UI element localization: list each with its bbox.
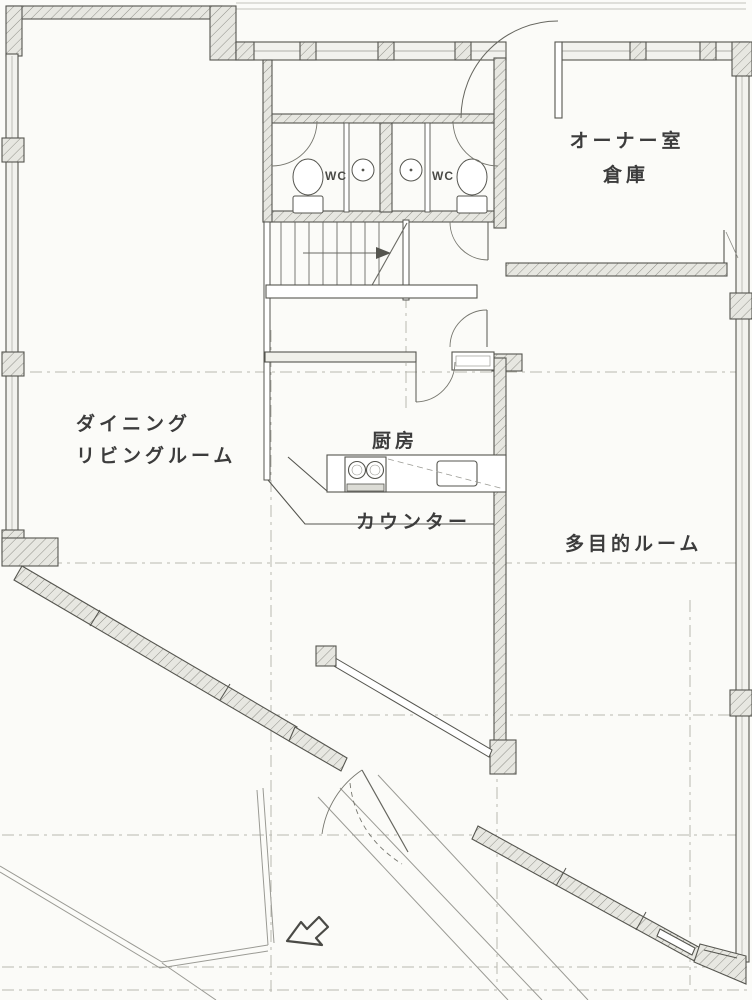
owner-room-label: オーナー室: [569, 129, 684, 152]
right-pilaster: [730, 293, 752, 319]
bay-right-post: [210, 6, 236, 60]
corridor-west-wall: [263, 60, 272, 222]
wc-right-label: WC: [432, 169, 454, 183]
counter-label: カウンター: [356, 511, 471, 533]
wall-cap: [490, 740, 516, 774]
kitchen-label: 厨房: [372, 429, 418, 452]
sw-corner-block: [2, 538, 58, 566]
cooktop-control-strip: [347, 484, 384, 491]
wc-center-wall: [380, 123, 392, 212]
owner-room-west-wall: [494, 58, 506, 228]
wc-partition: [344, 123, 349, 212]
multipurpose-room-label: 多目的ルーム: [565, 532, 702, 555]
left-pilaster: [2, 138, 24, 162]
multipurpose-north-wall: [506, 263, 727, 276]
right-pilaster: [730, 690, 752, 716]
stair-landing: [266, 285, 477, 298]
right-wall: [736, 42, 749, 962]
dining-label-line2: リビングルーム: [76, 444, 236, 467]
floor-plan-canvas: オーナー室 倉庫 ダイニング リビングルーム 厨房 カウンター 多目的ルーム W…: [0, 0, 752, 1000]
kitchen-pass-through: [452, 352, 494, 370]
toilet-tank: [457, 196, 487, 213]
multipurpose-west-wall: [494, 358, 506, 747]
vestibule-wall-post: [316, 646, 336, 666]
right-top-corner: [732, 42, 752, 76]
floor-plan-sheet: オーナー室 倉庫 ダイニング リビングルーム 厨房 カウンター 多目的ルーム W…: [0, 0, 752, 1000]
toilet-icon: [457, 159, 487, 195]
stair-kitchen-west-wall: [264, 222, 270, 480]
bay-left-corner: [6, 6, 22, 56]
kitchen-north-wall: [265, 352, 416, 362]
entry-door-stub-wall: [555, 42, 562, 118]
toilet-icon: [293, 159, 323, 195]
storage-label: 倉庫: [602, 163, 649, 186]
dining-label-line1: ダイニング: [76, 412, 191, 435]
wc-north-wall: [263, 114, 505, 123]
wc-partition: [425, 123, 430, 212]
bay-top-wall: [8, 6, 222, 19]
left-pilaster: [2, 352, 24, 376]
wc-left-label: WC: [325, 169, 347, 183]
toilet-tank: [293, 196, 323, 213]
